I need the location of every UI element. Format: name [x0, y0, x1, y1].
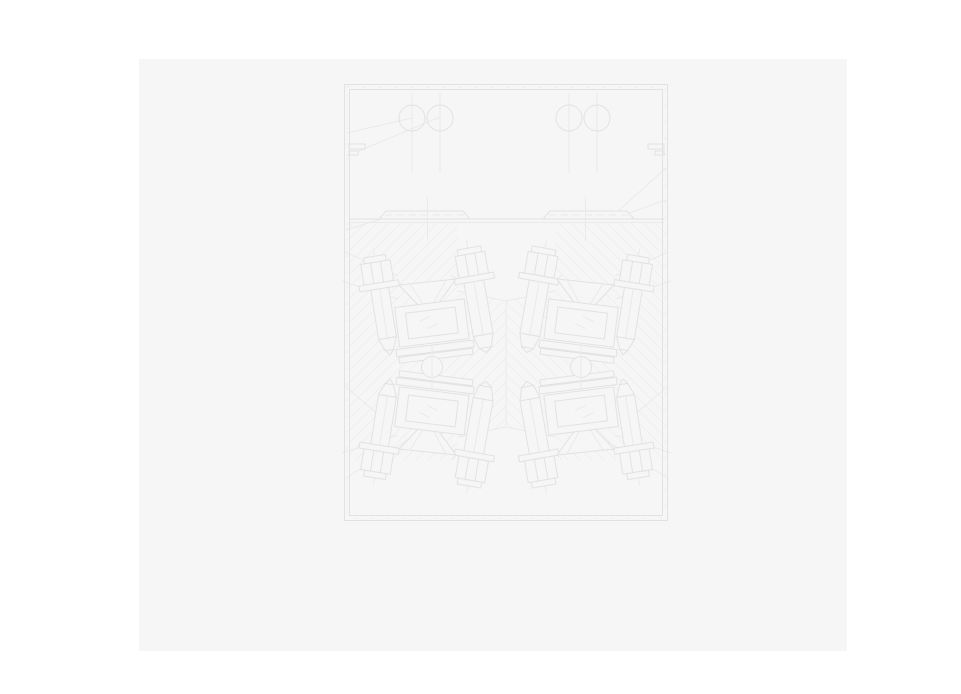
blueprint-viewer — [0, 0, 961, 694]
